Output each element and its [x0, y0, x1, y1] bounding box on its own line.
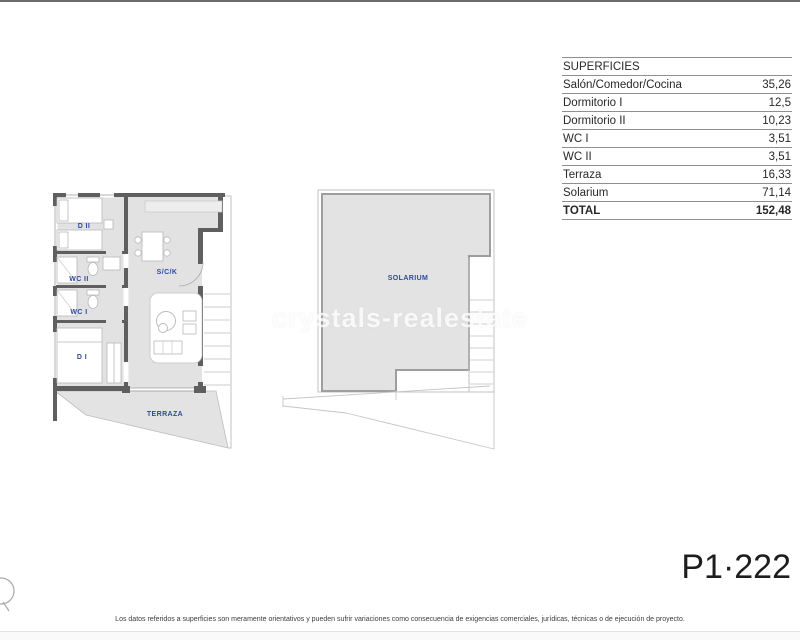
row-label: Solarium	[563, 187, 608, 199]
corner-logo-icon	[0, 578, 14, 611]
row-label: WC I	[563, 133, 589, 145]
plan-code: P1·222	[681, 548, 791, 587]
label-wc2: WC II	[69, 276, 89, 283]
label-dormitorio2: D II	[78, 223, 91, 230]
page-bottom-strip	[0, 631, 800, 640]
row-label: Dormitorio II	[563, 115, 626, 127]
total-value: 152,48	[756, 205, 791, 217]
apartment-plan: D II WC II WC I D I S/C/K TERRAZA	[53, 193, 232, 449]
label-solarium: SOLARIUM	[388, 275, 429, 282]
table-row: Dormitorio I 12,5	[562, 94, 792, 112]
solarium-plan: SOLARIUM	[283, 190, 494, 449]
table-row: Dormitorio II 10,23	[562, 112, 792, 130]
total-label: TOTAL	[563, 205, 600, 217]
superficies-table: SUPERFICIES Salón/Comedor/Cocina 35,26 D…	[562, 57, 792, 220]
label-dormitorio1: D I	[77, 354, 87, 361]
row-value: 3,51	[769, 133, 791, 145]
label-salon: S/C/K	[157, 269, 178, 276]
row-value: 71,14	[762, 187, 791, 199]
solarium-area	[322, 194, 490, 391]
solarium-stairs	[470, 300, 493, 384]
roof-outline	[283, 386, 494, 449]
table-row: Salón/Comedor/Cocina 35,26	[562, 76, 792, 94]
table-header-row: SUPERFICIES	[562, 58, 792, 76]
row-value: 3,51	[769, 151, 791, 163]
label-wc1: WC I	[70, 309, 87, 316]
table-title: SUPERFICIES	[563, 61, 640, 73]
terraza-area	[55, 391, 228, 448]
row-value: 35,26	[762, 79, 791, 91]
table-row: Terraza 16,33	[562, 166, 792, 184]
table-row: WC II 3,51	[562, 148, 792, 166]
row-label: Terraza	[563, 169, 601, 181]
row-value: 12,5	[769, 97, 791, 109]
label-terraza: TERRAZA	[147, 411, 183, 418]
row-value: 10,23	[762, 115, 791, 127]
table-row: WC I 3,51	[562, 130, 792, 148]
table-total-row: TOTAL 152,48	[562, 202, 792, 220]
table-row: Solarium 71,14	[562, 184, 792, 202]
row-label: Dormitorio I	[563, 97, 622, 109]
row-label: WC II	[563, 151, 592, 163]
disclaimer-text: Los datos referidos a superficies son me…	[0, 616, 800, 623]
row-label: Salón/Comedor/Cocina	[563, 79, 682, 91]
row-value: 16,33	[762, 169, 791, 181]
stairs	[204, 294, 230, 385]
